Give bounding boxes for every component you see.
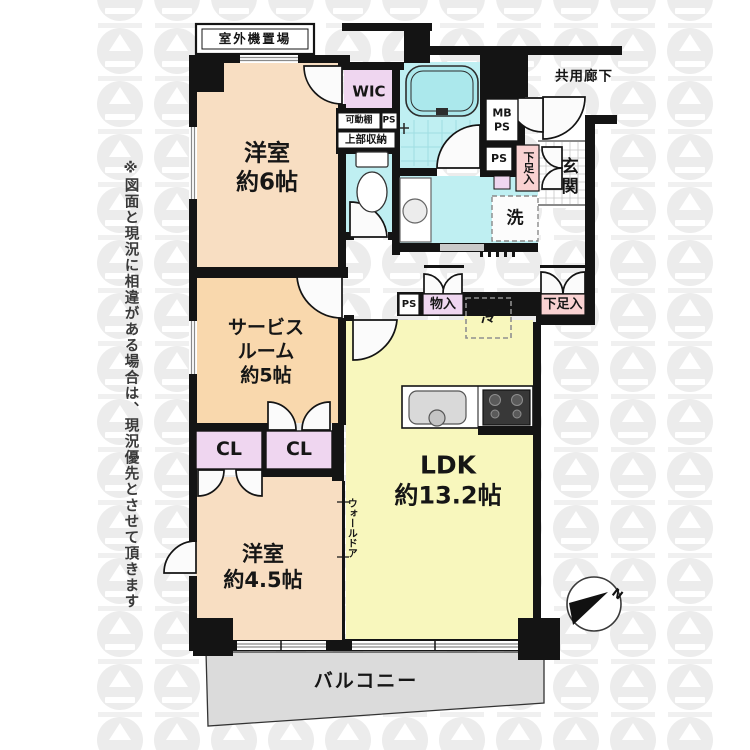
ps-entrance-box — [486, 147, 512, 171]
room-wic — [344, 70, 394, 113]
floor-plan-drawing: N — [0, 0, 750, 750]
kitchen-stove — [483, 390, 530, 425]
ps-shelf-box — [382, 113, 397, 129]
storage-door-left — [424, 274, 444, 294]
stove-burner — [491, 410, 499, 418]
mb-ps-box — [486, 99, 518, 141]
storage-box — [423, 294, 463, 315]
stove-burner — [512, 395, 523, 406]
vanity-basin — [403, 199, 427, 223]
washroom-small-box — [494, 176, 510, 189]
room-bedroom45 — [196, 477, 342, 640]
floor-plan-page: N ※図面と現況に相違がある場合は、現況優先とさせて頂きます 室外機置場 共用廊… — [0, 0, 750, 750]
bedroom45-swing-window — [164, 541, 196, 573]
shoe-box-ldk-rect — [541, 294, 585, 315]
shoe-ldk-door-left — [541, 272, 563, 294]
kitchen-sink-drain — [429, 410, 445, 426]
kitchen-wall-stub — [478, 426, 533, 435]
outdoor-unit-box-inner — [202, 29, 308, 49]
closet-right-rect — [266, 431, 332, 469]
shoe-ldk-door-right — [563, 272, 585, 294]
storage-door-right — [443, 274, 462, 294]
upper-storage-box — [338, 132, 395, 148]
ps-corridor-box — [399, 294, 419, 315]
closet-left-rect — [196, 431, 262, 469]
room-ldk — [346, 320, 533, 639]
stove-burner — [513, 410, 521, 418]
toilet-tank — [356, 152, 388, 167]
movable-shelf-box — [338, 113, 380, 129]
compass: N — [567, 577, 626, 631]
room-balcony — [206, 652, 544, 726]
stove-burner — [490, 395, 501, 406]
bathtub-faucet — [436, 108, 448, 115]
laundry-box — [492, 196, 538, 241]
shoe-box-entrance-rect — [516, 145, 539, 191]
toilet-bowl — [357, 172, 387, 212]
